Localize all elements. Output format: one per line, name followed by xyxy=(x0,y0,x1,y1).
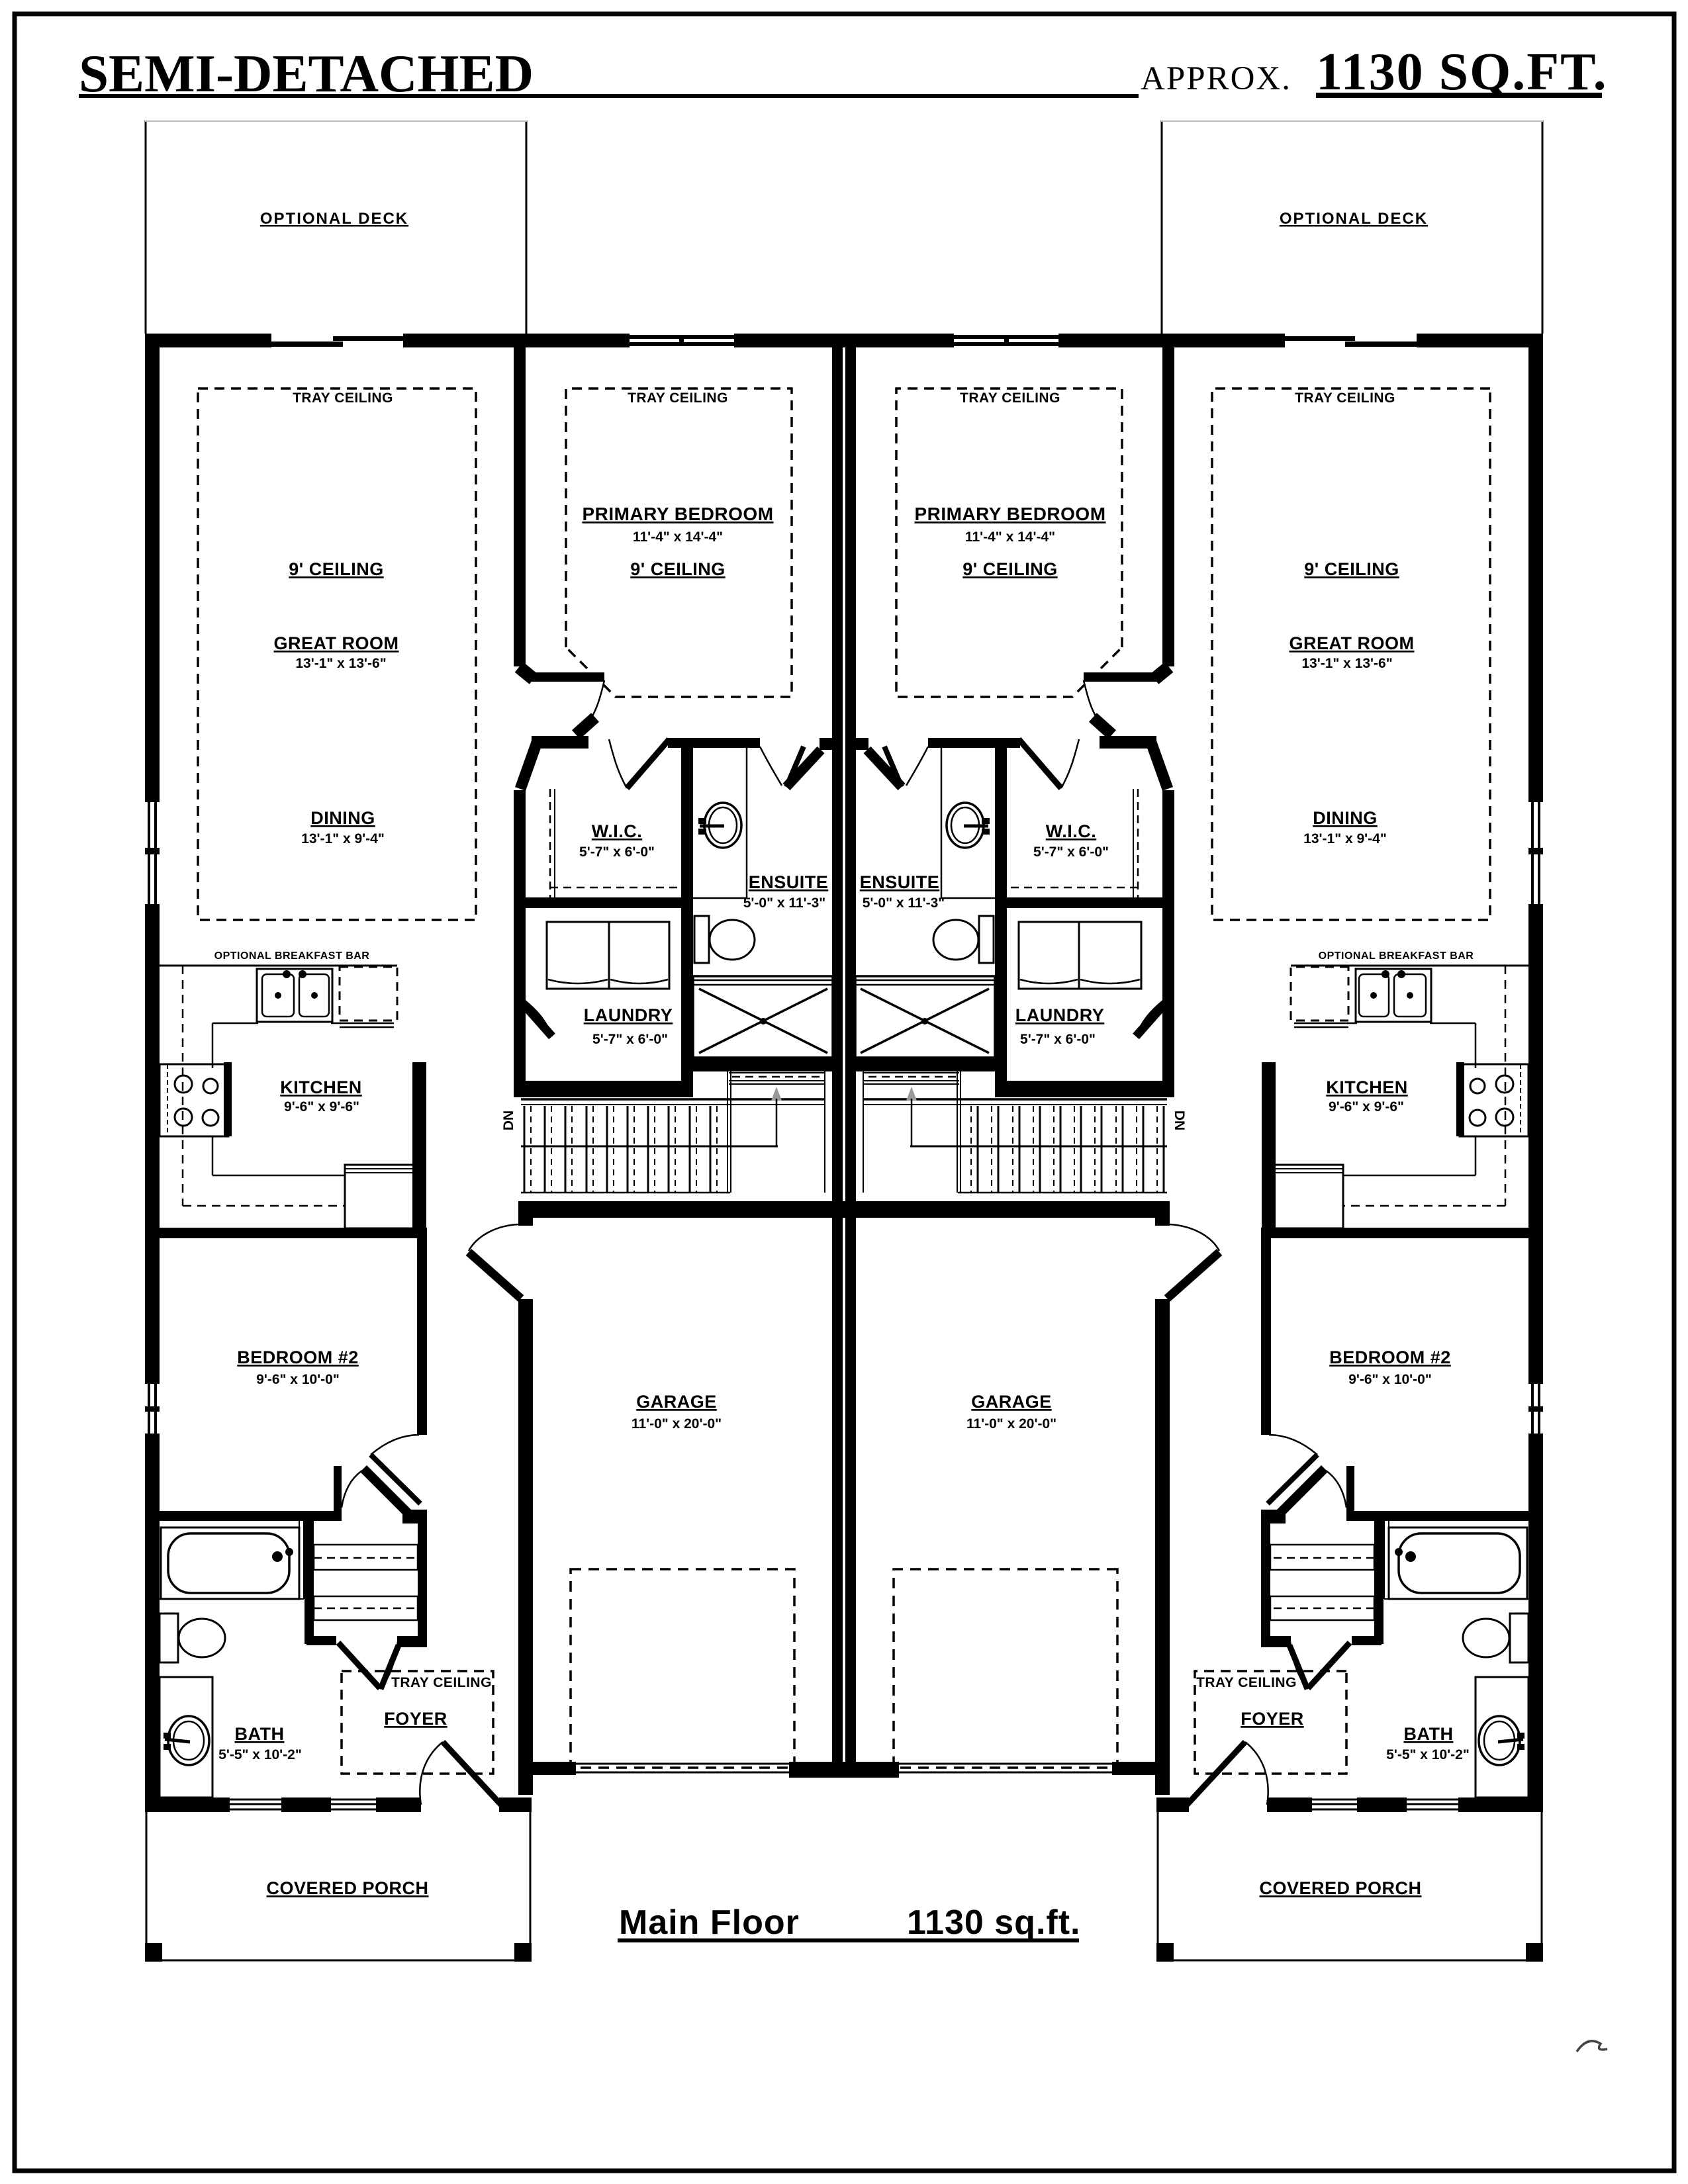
svg-text:Main Floor: Main Floor xyxy=(619,1903,800,1942)
svg-text:TRAY CEILING: TRAY CEILING xyxy=(628,390,728,406)
svg-text:TRAY CEILING: TRAY CEILING xyxy=(960,390,1060,406)
svg-text:13'-1" x 13'-6": 13'-1" x 13'-6" xyxy=(295,656,386,671)
svg-text:BATH: BATH xyxy=(1404,1724,1454,1744)
svg-text:OPTIONAL DECK: OPTIONAL DECK xyxy=(1280,210,1428,228)
svg-text:KITCHEN: KITCHEN xyxy=(1326,1077,1408,1097)
svg-text:13'-1" x 9'-4": 13'-1" x 9'-4" xyxy=(1303,831,1387,846)
svg-text:DINING: DINING xyxy=(310,808,375,828)
svg-text:GREAT ROOM: GREAT ROOM xyxy=(274,633,399,653)
svg-text:FOYER: FOYER xyxy=(1241,1709,1304,1729)
svg-text:GARAGE: GARAGE xyxy=(971,1392,1052,1412)
svg-text:OPTIONAL BREAKFAST BAR: OPTIONAL BREAKFAST BAR xyxy=(1319,950,1474,962)
svg-text:TRAY CEILING: TRAY CEILING xyxy=(391,1675,492,1690)
svg-text:5'-5" x 10'-2": 5'-5" x 10'-2" xyxy=(218,1747,302,1762)
svg-text:5'-7" x 6'-0": 5'-7" x 6'-0" xyxy=(1033,844,1109,860)
svg-text:APPROX.: APPROX. xyxy=(1141,60,1291,97)
svg-text:9'-6" x 9'-6": 9'-6" x 9'-6" xyxy=(284,1099,359,1115)
svg-text:9' CEILING: 9' CEILING xyxy=(962,559,1057,579)
svg-text:W.I.C.: W.I.C. xyxy=(592,821,643,841)
svg-text:9' CEILING: 9' CEILING xyxy=(289,559,383,579)
svg-text:TRAY CEILING: TRAY CEILING xyxy=(1295,390,1395,406)
svg-text:9' CEILING: 9' CEILING xyxy=(630,559,725,579)
svg-text:9'-6" x 9'-6": 9'-6" x 9'-6" xyxy=(1329,1099,1404,1115)
svg-text:11'-0" x 20'-0": 11'-0" x 20'-0" xyxy=(632,1416,722,1432)
svg-text:13'-1" x 13'-6": 13'-1" x 13'-6" xyxy=(1301,656,1392,671)
svg-text:TRAY CEILING: TRAY CEILING xyxy=(1196,1675,1297,1690)
svg-text:W.I.C.: W.I.C. xyxy=(1046,821,1097,841)
svg-text:DINING: DINING xyxy=(1313,808,1378,828)
svg-text:5'-7" x 6'-0": 5'-7" x 6'-0" xyxy=(592,1032,668,1047)
svg-text:OPTIONAL BREAKFAST BAR: OPTIONAL BREAKFAST BAR xyxy=(214,950,370,962)
svg-text:COVERED PORCH: COVERED PORCH xyxy=(1259,1878,1421,1898)
svg-text:BEDROOM #2: BEDROOM #2 xyxy=(1329,1347,1451,1367)
svg-text:OPTIONAL DECK: OPTIONAL DECK xyxy=(260,210,408,228)
svg-text:DN: DN xyxy=(1172,1111,1187,1130)
svg-text:BEDROOM #2: BEDROOM #2 xyxy=(237,1347,359,1367)
svg-text:11'-0" x 20'-0": 11'-0" x 20'-0" xyxy=(966,1416,1056,1432)
svg-text:ENSUITE: ENSUITE xyxy=(860,872,940,892)
svg-text:TRAY CEILING: TRAY CEILING xyxy=(293,390,393,406)
svg-text:1130 sq.ft.: 1130 sq.ft. xyxy=(907,1903,1080,1942)
svg-text:KITCHEN: KITCHEN xyxy=(280,1077,362,1097)
svg-text:ENSUITE: ENSUITE xyxy=(749,872,829,892)
svg-text:11'-4" x 14'-4": 11'-4" x 14'-4" xyxy=(633,529,723,545)
svg-text:FOYER: FOYER xyxy=(384,1709,447,1729)
svg-text:COVERED PORCH: COVERED PORCH xyxy=(266,1878,428,1898)
svg-text:PRIMARY BEDROOM: PRIMARY BEDROOM xyxy=(582,504,773,524)
svg-text:PRIMARY BEDROOM: PRIMARY BEDROOM xyxy=(914,504,1105,524)
svg-text:13'-1" x 9'-4": 13'-1" x 9'-4" xyxy=(301,831,385,846)
svg-text:1130 SQ.FT.: 1130 SQ.FT. xyxy=(1316,43,1608,101)
svg-text:5'-7" x 6'-0": 5'-7" x 6'-0" xyxy=(579,844,655,860)
svg-text:LAUNDRY: LAUNDRY xyxy=(584,1005,673,1025)
svg-text:DN: DN xyxy=(501,1111,516,1130)
svg-text:GARAGE: GARAGE xyxy=(636,1392,717,1412)
svg-text:5'-7" x 6'-0": 5'-7" x 6'-0" xyxy=(1020,1032,1096,1047)
svg-text:LAUNDRY: LAUNDRY xyxy=(1015,1005,1105,1025)
svg-text:GREAT ROOM: GREAT ROOM xyxy=(1289,633,1415,653)
svg-text:9' CEILING: 9' CEILING xyxy=(1304,559,1399,579)
svg-text:9'-6" x 10'-0": 9'-6" x 10'-0" xyxy=(256,1372,340,1387)
svg-text:5'-0" x 11'-3": 5'-0" x 11'-3" xyxy=(743,895,825,911)
svg-text:5'-5" x 10'-2": 5'-5" x 10'-2" xyxy=(1386,1747,1470,1762)
svg-text:11'-4" x 14'-4": 11'-4" x 14'-4" xyxy=(965,529,1055,545)
svg-text:5'-0" x 11'-3": 5'-0" x 11'-3" xyxy=(863,895,945,911)
svg-text:9'-6" x 10'-0": 9'-6" x 10'-0" xyxy=(1348,1372,1432,1387)
svg-text:BATH: BATH xyxy=(235,1724,285,1744)
